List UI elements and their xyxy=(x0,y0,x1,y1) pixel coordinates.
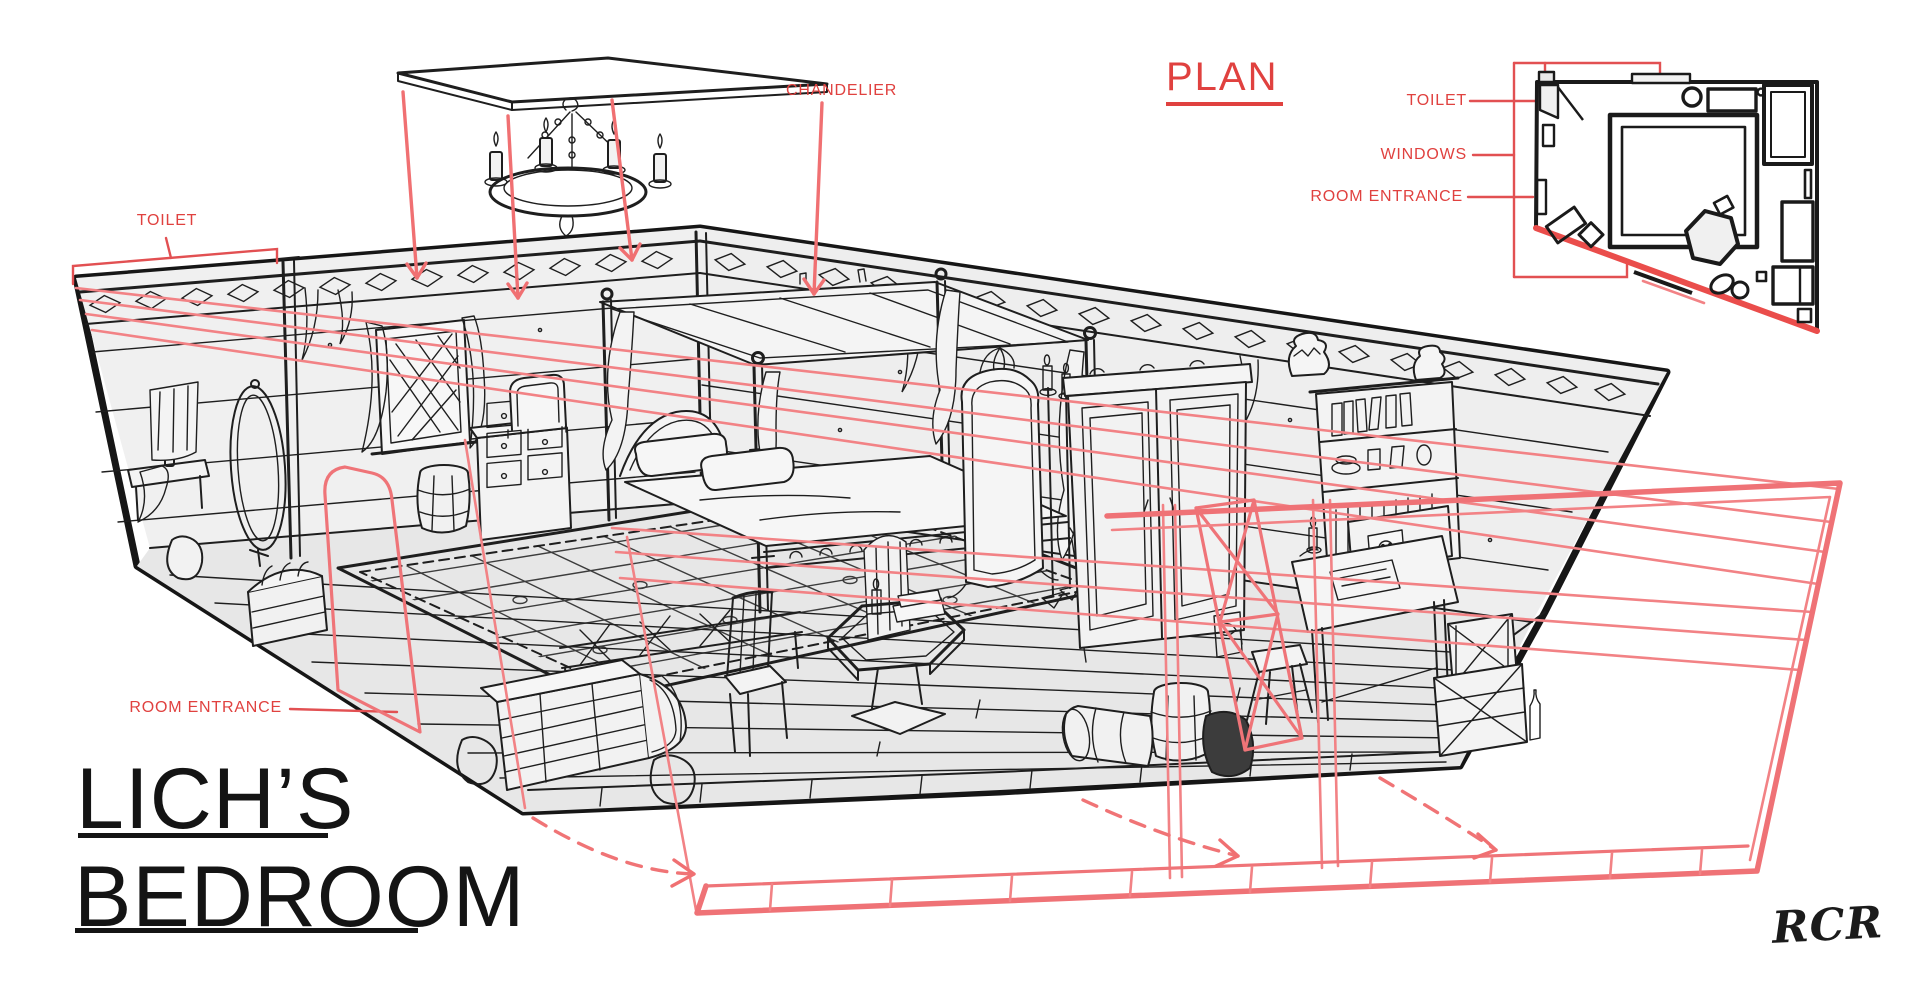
room-entrance-label: ROOM ENTRANCE xyxy=(52,699,282,717)
chandelier-label: CHANDELIER xyxy=(786,82,897,100)
title-underline-2 xyxy=(75,928,418,933)
toilet-label: TOILET xyxy=(100,212,234,230)
artist-signature: RCR xyxy=(1771,897,1885,954)
arch-panel xyxy=(864,536,910,640)
concept-art-page: TOILET CHANDELIER ROOM ENTRANCE PLAN TOI… xyxy=(0,0,1920,1008)
plan-legend-room-entrance: ROOM ENTRANCE xyxy=(1233,188,1463,206)
sack xyxy=(167,536,202,579)
page-title-line1: LICH’S xyxy=(76,756,354,842)
plan-windows-wall-red xyxy=(1536,228,1817,331)
bottle xyxy=(1530,690,1540,740)
barrel-window xyxy=(417,465,470,533)
plan-legend-toilet: TOILET xyxy=(1267,92,1467,110)
title-underline-1 xyxy=(78,833,328,838)
plan-legend-windows: WINDOWS xyxy=(1267,146,1467,164)
wall-cloth xyxy=(150,382,198,460)
plan-title: PLAN xyxy=(1166,55,1283,106)
floor-plan xyxy=(1468,63,1817,331)
plan-furniture xyxy=(1537,72,1813,322)
